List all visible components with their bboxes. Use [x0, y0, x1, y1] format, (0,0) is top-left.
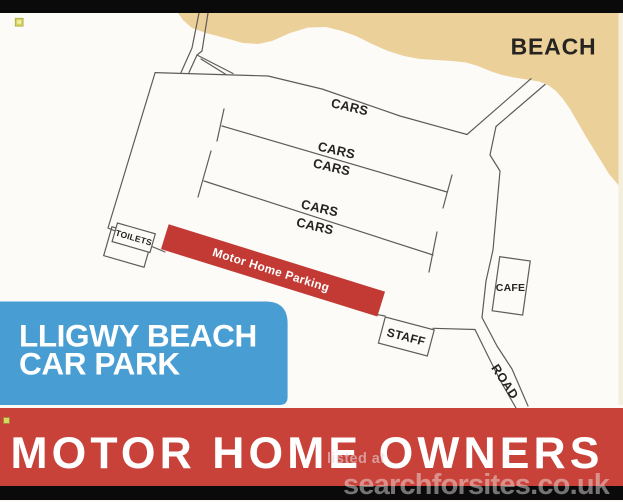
svg-text:CARS: CARS	[330, 95, 370, 118]
svg-text:CAR PARK: CAR PARK	[19, 346, 180, 382]
svg-text:BEACH: BEACH	[511, 34, 597, 60]
svg-text:CAFE: CAFE	[496, 282, 525, 294]
svg-text:CARS: CARS	[295, 214, 335, 237]
svg-text:ROAD: ROAD	[488, 362, 521, 402]
